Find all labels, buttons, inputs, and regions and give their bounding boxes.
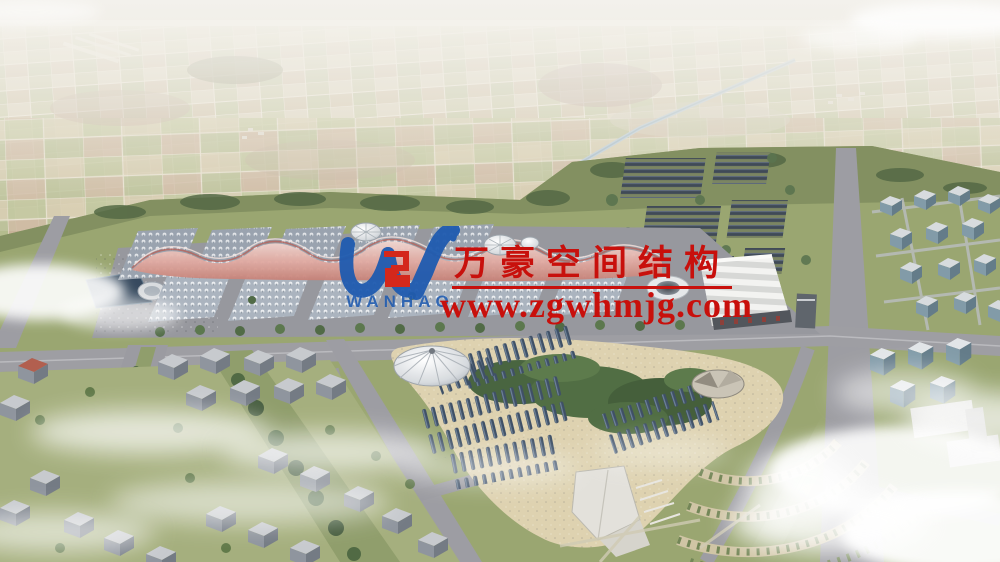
atmosphere-wash <box>0 0 1000 562</box>
aerial-architectural-rendering: WANHAO 万豪空间结构 www.zgwhmjg.com <box>0 0 1000 562</box>
scene-canvas <box>0 0 1000 562</box>
